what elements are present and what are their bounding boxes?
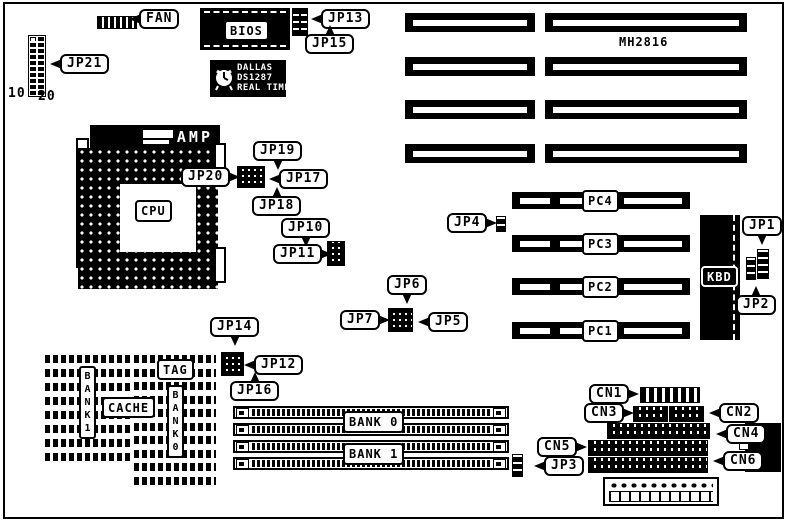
jp13-header (292, 8, 300, 36)
jp21-pin10-label: 10 (8, 86, 26, 101)
jp15-header (300, 8, 308, 36)
callout-jp2: JP2 (736, 295, 776, 315)
cpu-label: CPU (135, 200, 172, 222)
kbd-label: KBD (701, 266, 738, 287)
isa-slot (545, 13, 747, 32)
callout-cn1: CN1 (589, 384, 629, 404)
callout-jp3: JP3 (544, 456, 584, 476)
callout-cn3: CN3 (584, 403, 624, 423)
dallas-model: DS1287 (237, 73, 290, 83)
jp3-jumper (512, 454, 523, 477)
bank0-simm-label: BANK 0 (343, 411, 404, 433)
cn5-connector (588, 440, 708, 456)
callout-jp11: JP11 (273, 244, 322, 264)
jp4-jumper (496, 216, 506, 232)
bank1-vertical-label: BANK1 (79, 366, 96, 439)
dallas-rtc-chip: DALLAS DS1287 REAL TIME (210, 60, 286, 97)
cn4-connector (607, 423, 710, 439)
cn2-connector (669, 406, 704, 422)
jp21-header (28, 35, 46, 97)
callout-jp20: JP20 (181, 167, 230, 187)
isa-slot (405, 57, 535, 76)
pc3-label: PC3 (582, 233, 619, 255)
pc2-label: PC2 (582, 276, 619, 298)
jp5-6-7-jumper-block (388, 308, 413, 332)
jp21-pin20-label: 20 (38, 89, 56, 104)
bank0-vertical-label: BANK0 (167, 385, 184, 458)
callout-cn4: CN4 (726, 424, 766, 444)
clock-icon (213, 66, 235, 92)
callout-jp14: JP14 (210, 317, 259, 337)
dallas-type: REAL TIME (237, 83, 290, 93)
jp21-pin1 (31, 38, 35, 42)
jp21-pin-column (30, 37, 36, 95)
callout-jp16: JP16 (230, 381, 279, 401)
pc3-slot: PC3 (512, 235, 690, 252)
cache-label: CACHE (102, 397, 155, 418)
tag-ram-label: TAG (157, 359, 194, 380)
isa-slot (545, 100, 747, 119)
dallas-brand: DALLAS (237, 63, 290, 73)
cn1-connector (640, 387, 700, 403)
isa-slot (545, 144, 747, 163)
isa-slot (405, 144, 535, 163)
callout-jp4: JP4 (447, 213, 487, 233)
callout-jp17: JP17 (279, 169, 328, 189)
pc1-slot: PC1 (512, 322, 690, 339)
cn3-connector (633, 406, 668, 422)
callout-cn2: CN2 (719, 403, 759, 423)
jp21-pin-column (38, 37, 44, 95)
isa-slot (405, 13, 535, 32)
amp-label: AMP (177, 128, 213, 146)
callout-jp21: JP21 (60, 54, 109, 74)
callout-jp5: JP5 (428, 312, 468, 332)
cn6-connector (588, 457, 708, 473)
jp12-14-16-jumper-block (221, 352, 244, 376)
pc1-label: PC1 (582, 320, 619, 342)
bank1-simm-label: BANK 1 (343, 443, 404, 465)
pc4-label: PC4 (582, 190, 619, 212)
amp-socket-lever: AMP (90, 125, 220, 150)
callout-jp18: JP18 (252, 196, 301, 216)
callout-jp10: JP10 (281, 218, 330, 238)
callout-jp1: JP1 (742, 216, 782, 236)
callout-cn6: CN6 (723, 451, 763, 471)
motherboard-diagram: FAN JP21 10 20 BIOS JP13 JP15 DALLAS DS1… (0, 0, 785, 520)
isa-slot (405, 100, 535, 119)
jp1-jumper (757, 249, 769, 279)
bottom-pin-connector (603, 477, 719, 506)
pc2-slot: PC2 (512, 278, 690, 295)
callout-fan: FAN (139, 9, 179, 29)
callout-jp12: JP12 (254, 355, 303, 375)
callout-jp7: JP7 (340, 310, 380, 330)
board-model-label: MH2816 (619, 35, 668, 49)
bios-label: BIOS (224, 20, 269, 41)
isa-slot (545, 57, 747, 76)
jp17-20-jumper-block (237, 166, 265, 188)
callout-cn5: CN5 (537, 437, 577, 457)
socket-right-tab (214, 247, 226, 283)
jp2-jumper (746, 257, 756, 280)
callout-jp6: JP6 (387, 275, 427, 295)
callout-jp15: JP15 (305, 34, 354, 54)
pc4-slot: PC4 (512, 192, 690, 209)
callout-jp19: JP19 (253, 141, 302, 161)
